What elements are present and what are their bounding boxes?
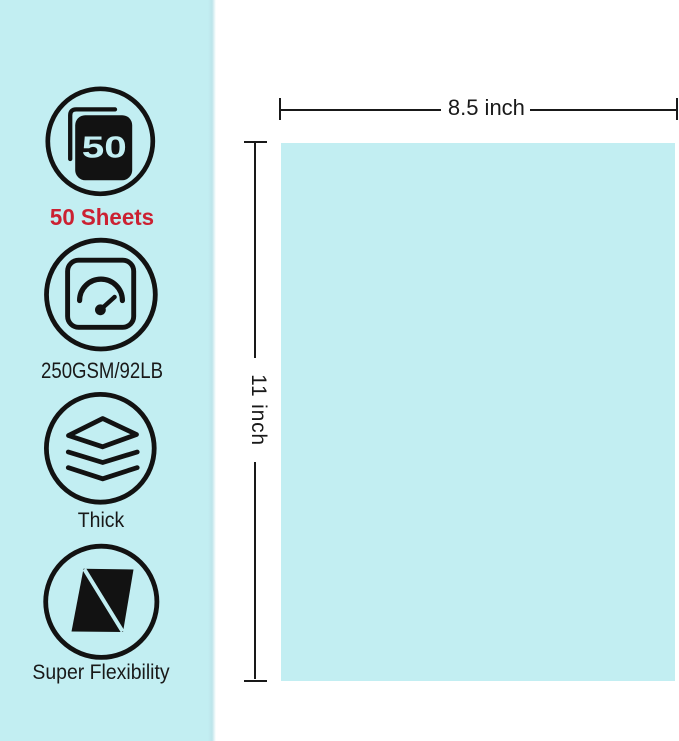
svg-text:50: 50 [82,129,127,164]
